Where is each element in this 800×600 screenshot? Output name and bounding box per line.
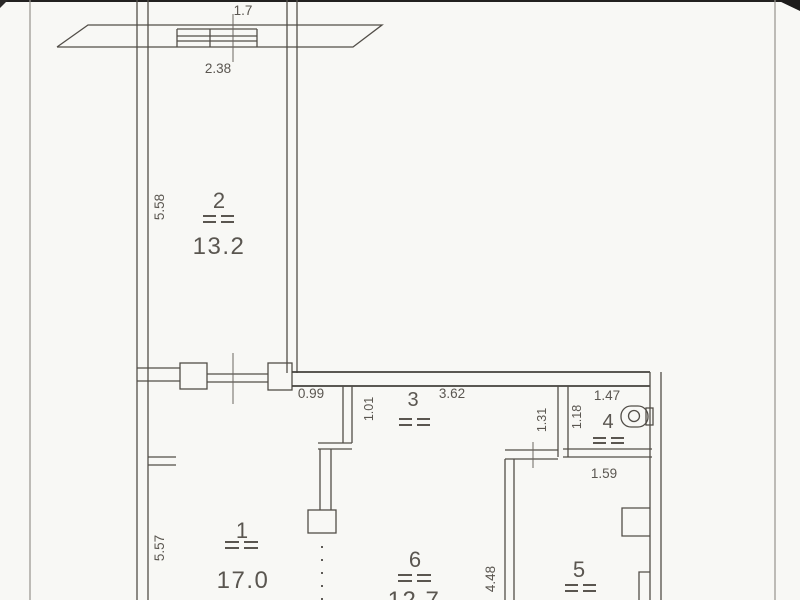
wall-corridor-top bbox=[292, 372, 650, 386]
window-icon bbox=[177, 29, 257, 47]
wall-pillar-right bbox=[268, 363, 292, 390]
dim-room-4-width: 1.47 bbox=[594, 388, 620, 403]
room-6-area: 12.7 bbox=[388, 587, 441, 600]
area-separator-room6 bbox=[398, 575, 431, 581]
room-1-area: 17.0 bbox=[217, 567, 270, 594]
toilet-icon bbox=[621, 406, 653, 427]
scan-border bbox=[0, 0, 800, 11]
room-4-number: 4 bbox=[602, 411, 613, 433]
area-separator-room3 bbox=[399, 419, 430, 425]
floor-plan-drawing: 1.7 2.38 2 13.2 5.58 1 17.0 5.57 3 3.62 … bbox=[0, 0, 800, 600]
wall-room4-bottom bbox=[563, 449, 652, 457]
dim-room-4-height: 1.18 bbox=[570, 405, 584, 429]
scanned-floor-plan-page: 1.7 2.38 2 13.2 5.58 1 17.0 5.57 3 3.62 … bbox=[0, 0, 800, 600]
dim-doorway-width: 0.99 bbox=[298, 386, 324, 401]
wall-right-outer bbox=[650, 372, 661, 600]
dim-balcony-length: 1.7 bbox=[234, 3, 253, 18]
room-6-number: 6 bbox=[409, 547, 421, 572]
wall-room5-top-left bbox=[505, 450, 558, 459]
dim-room-5-top-width: 1.59 bbox=[591, 466, 617, 481]
wall-niche-lower bbox=[639, 572, 650, 600]
doorway-threshold bbox=[207, 374, 268, 382]
paper-edges bbox=[30, 0, 775, 600]
room-2-number: 2 bbox=[213, 188, 225, 213]
area-separator-room5 bbox=[565, 585, 596, 591]
dim-room-6-height: 4.48 bbox=[483, 566, 498, 592]
wall-left-outer bbox=[137, 0, 148, 600]
dim-window-width: 2.38 bbox=[205, 61, 231, 76]
dim-room-1-height: 5.57 bbox=[152, 535, 167, 561]
labels: 1.7 2.38 2 13.2 5.58 1 17.0 5.57 3 3.62 … bbox=[152, 3, 620, 600]
wall-room2-right bbox=[287, 0, 297, 373]
wall-room1-room6 bbox=[320, 449, 331, 510]
room-2-area: 13.2 bbox=[193, 233, 246, 260]
dim-room-3-height: 1.01 bbox=[362, 397, 376, 421]
area-separator-room4 bbox=[593, 438, 624, 443]
wall-stub-left bbox=[148, 457, 176, 465]
wall-room4-left bbox=[558, 386, 568, 457]
dim-room-2-height: 5.58 bbox=[152, 194, 167, 220]
area-separator-room2 bbox=[203, 216, 234, 222]
dim-room-3-width: 3.62 bbox=[439, 386, 465, 401]
room-3-number: 3 bbox=[407, 389, 418, 411]
wall-partition-pillar bbox=[308, 510, 336, 533]
wall-room2-bottom-left bbox=[137, 368, 180, 381]
room-1-number: 1 bbox=[236, 518, 248, 543]
wall-room6-room5 bbox=[505, 459, 514, 600]
walls bbox=[137, 0, 661, 600]
wall-pillar-left bbox=[180, 363, 207, 389]
wall-niche-upper bbox=[622, 508, 650, 536]
dim-corridor-right-wall: 1.31 bbox=[535, 408, 549, 432]
room-5-number: 5 bbox=[573, 557, 585, 582]
